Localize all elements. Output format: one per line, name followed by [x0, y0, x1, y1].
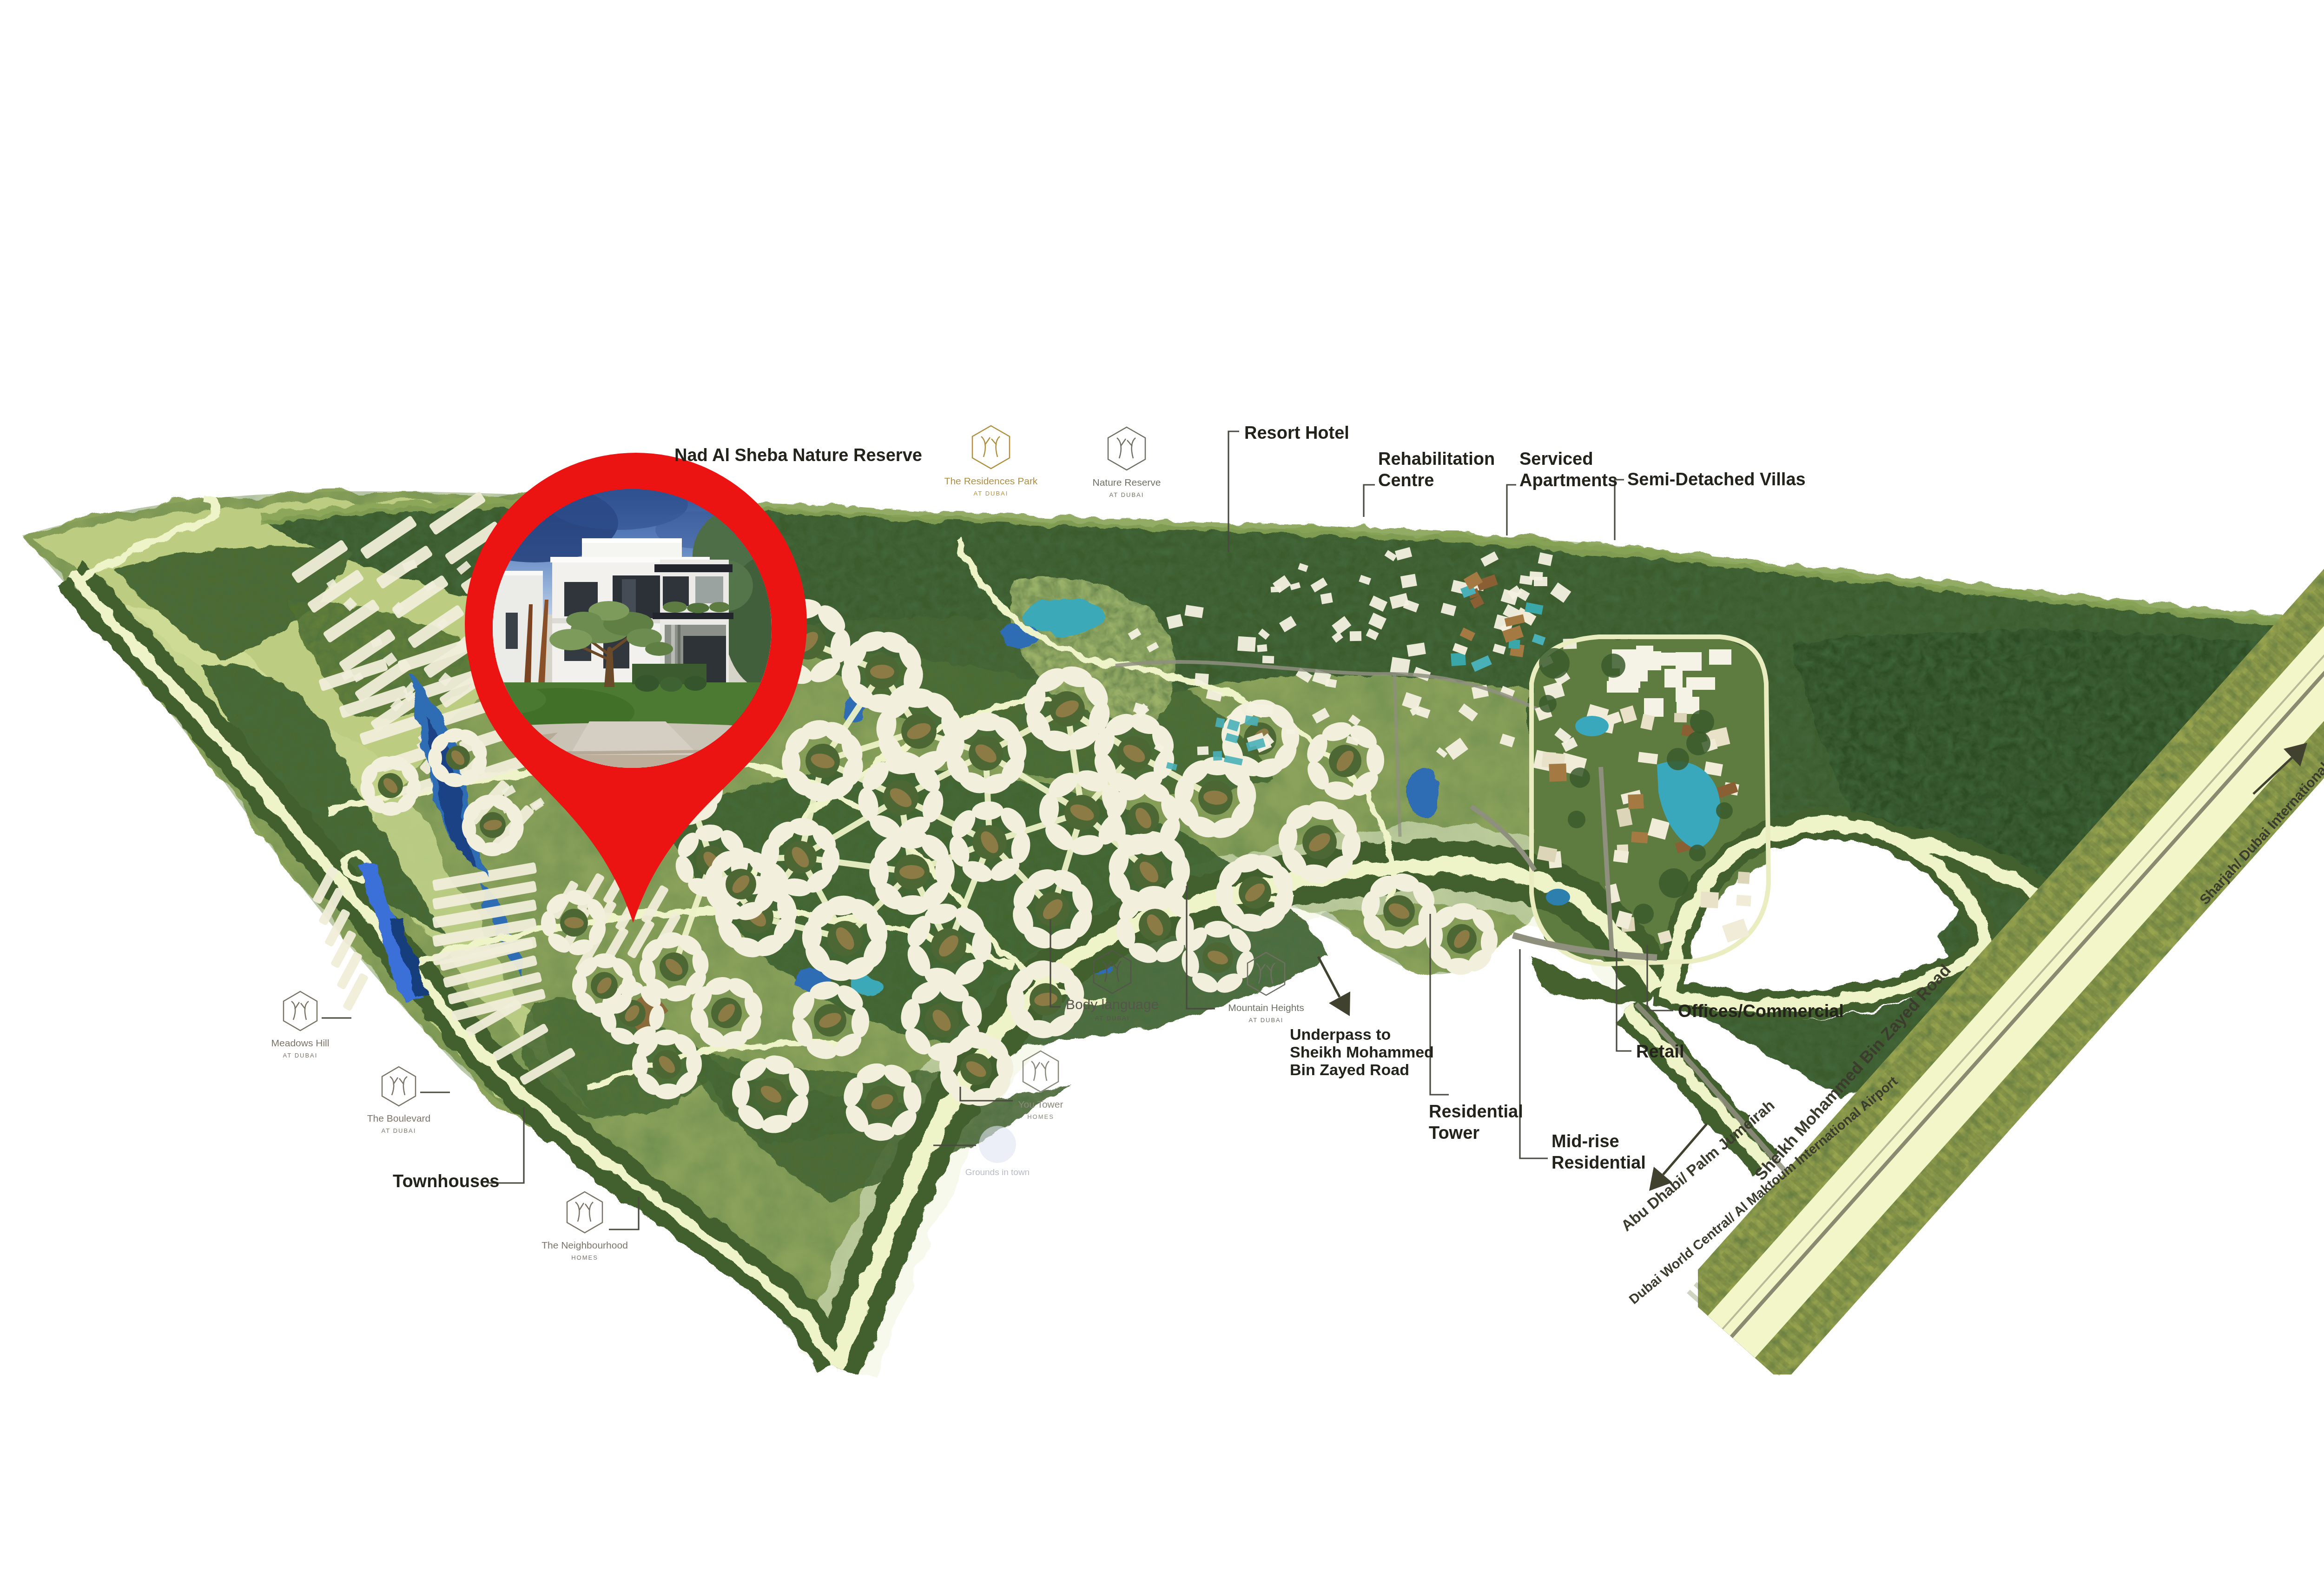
svg-text:AT DUBAI: AT DUBAI [1095, 1015, 1130, 1022]
svg-text:AT DUBAI: AT DUBAI [974, 490, 1009, 497]
svg-text:Residential: Residential [1552, 1153, 1646, 1172]
svg-text:Nad Al Sheba Nature Reserve: Nad Al Sheba Nature Reserve [674, 445, 922, 465]
svg-text:Mid-rise: Mid-rise [1552, 1131, 1619, 1151]
svg-text:Serviced: Serviced [1519, 449, 1593, 469]
svg-text:Grounds in town: Grounds in town [965, 1167, 1030, 1177]
svg-text:Body language: Body language [1066, 997, 1159, 1012]
svg-text:AT DUBAI: AT DUBAI [1249, 1017, 1284, 1024]
svg-text:Mountain Heights: Mountain Heights [1228, 1002, 1304, 1013]
svg-text:Semi-Detached Villas: Semi-Detached Villas [1627, 469, 1806, 489]
svg-text:Offices/Commercial: Offices/Commercial [1678, 1001, 1844, 1021]
svg-text:Rehabilitation: Rehabilitation [1378, 449, 1495, 469]
svg-text:The Neighbourhood: The Neighbourhood [541, 1240, 628, 1250]
svg-text:AT DUBAI: AT DUBAI [1109, 491, 1144, 498]
svg-text:AT DUBAI: AT DUBAI [283, 1052, 318, 1059]
svg-text:Resort Hotel: Resort Hotel [1244, 423, 1349, 443]
svg-text:Bin Zayed Road: Bin Zayed Road [1290, 1061, 1409, 1078]
svg-text:The Boulevard: The Boulevard [367, 1113, 431, 1123]
svg-text:Sheikh Mohammed: Sheikh Mohammed [1290, 1043, 1434, 1061]
svg-text:Apartments: Apartments [1519, 470, 1618, 490]
svg-text:Nature Reserve: Nature Reserve [1092, 477, 1161, 488]
svg-text:Meadows Hill: Meadows Hill [271, 1038, 330, 1048]
svg-text:Tower: Tower [1429, 1123, 1479, 1143]
svg-text:Retail: Retail [1636, 1042, 1684, 1061]
svg-text:Underpass to: Underpass to [1290, 1025, 1391, 1043]
svg-text:Centre: Centre [1378, 470, 1434, 490]
svg-text:HOMES: HOMES [1027, 1113, 1054, 1120]
svg-text:Townhouses: Townhouses [393, 1171, 499, 1191]
svg-text:AT DUBAI: AT DUBAI [382, 1127, 416, 1134]
svg-text:You Tower: You Tower [1018, 1099, 1063, 1110]
svg-text:HOMES: HOMES [571, 1254, 598, 1261]
svg-text:The Residences Park: The Residences Park [944, 476, 1038, 486]
svg-text:Residential: Residential [1429, 1102, 1523, 1121]
